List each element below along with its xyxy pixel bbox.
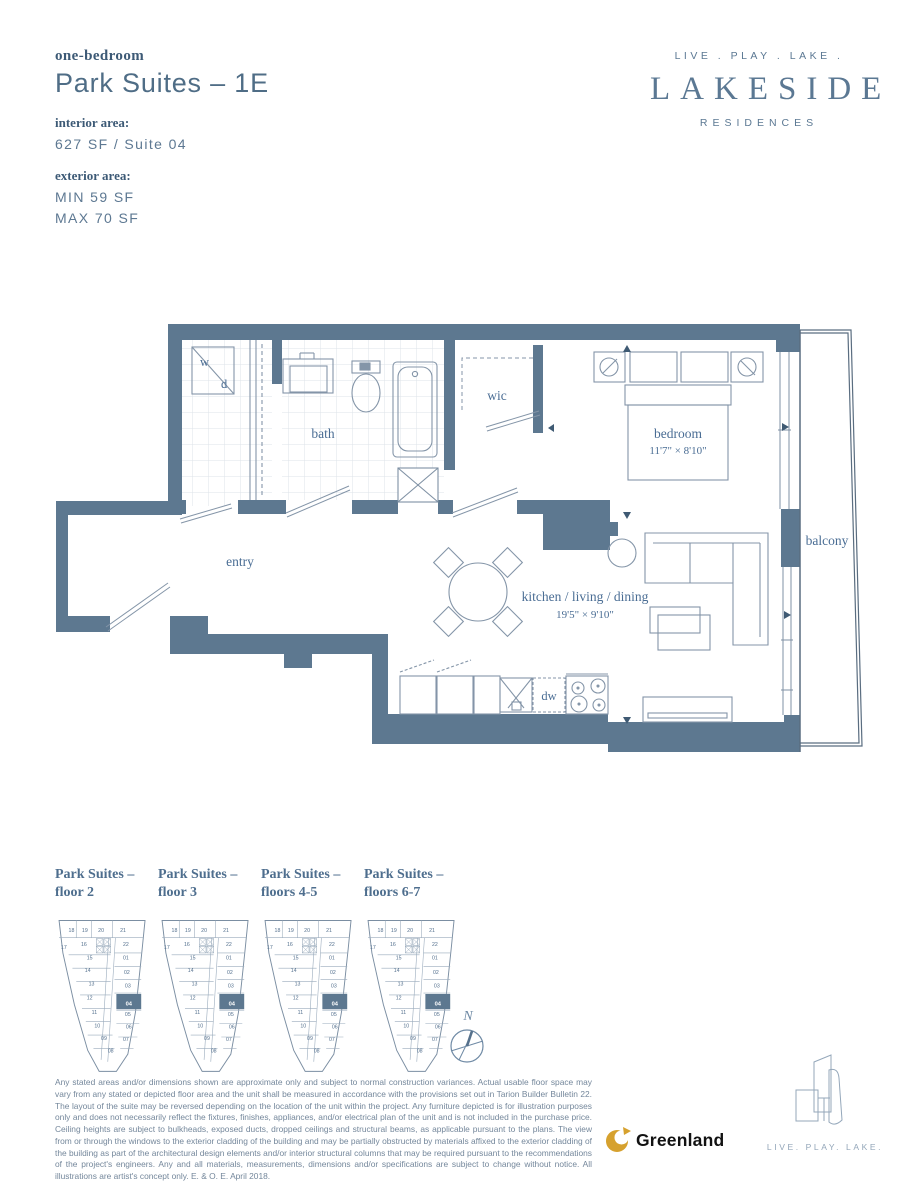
keyplan-unit-number: 06: [126, 1024, 132, 1030]
developer-name: Greenland: [636, 1130, 724, 1151]
keyplan-unit-number: 09: [204, 1036, 210, 1042]
keyplan-unit-number: 16: [287, 942, 293, 948]
keyplan-map: 1819202117162215011402130312041105100609…: [261, 909, 350, 1084]
keyplan-unit-number: 17: [267, 945, 273, 951]
keyplan-drawing: 1819202117162215011402130312041105100609…: [158, 909, 254, 1079]
bedroom-furniture: [594, 352, 763, 480]
keyplan-unit-number: 10: [94, 1023, 100, 1029]
keyplan-unit-number: 20: [201, 928, 207, 934]
keyplan-unit-number: 08: [211, 1048, 217, 1054]
exterior-area-max: MAX 70 SF: [55, 210, 269, 226]
keyplan-map: 1819202117162215011402130312041105100609…: [55, 909, 144, 1084]
wic-label: wic: [487, 388, 507, 403]
keyplan-unit-number: 17: [164, 945, 170, 951]
keyplan-floor-3: Park Suites –floor 3 1819202117162215011…: [158, 866, 247, 1084]
header: one-bedroom Park Suites – 1E interior ar…: [55, 48, 269, 226]
keyplan-unit-number: 20: [407, 928, 413, 934]
dryer-label: d: [221, 377, 228, 391]
keyplan-unit-number: 22: [226, 942, 232, 948]
keyplan-unit-number: 15: [190, 956, 196, 962]
keyplan-unit-number: 10: [403, 1023, 409, 1029]
keyplan-label: Park Suites –: [158, 867, 237, 882]
keyplan-unit-number: 13: [398, 981, 404, 987]
greenland-icon: [605, 1126, 631, 1154]
keyplan-unit-number: 19: [391, 928, 397, 934]
keyplan-unit-number: 05: [228, 1012, 234, 1018]
page-title: Park Suites – 1E: [55, 68, 269, 99]
bedroom-label: bedroom: [654, 426, 702, 441]
main-room-dims: 19'5" × 9'10": [556, 609, 614, 621]
keyplan-unit-number: 16: [81, 942, 87, 948]
keyplan-label: Park Suites –: [261, 867, 340, 882]
keyplan-unit-number: 19: [185, 928, 191, 934]
keyplan-unit-number: 02: [227, 970, 233, 976]
dishwasher-label: dw: [541, 689, 556, 703]
keyplan-unit-number: 18: [275, 928, 281, 934]
keyplan-unit-number: 03: [434, 983, 440, 989]
keyplan-unit-number: 16: [184, 942, 190, 948]
entry-label: entry: [226, 554, 254, 569]
keyplan-unit-number: 08: [108, 1048, 114, 1054]
linen-closet: [398, 468, 438, 502]
keyplan-unit-number: 10: [197, 1023, 203, 1029]
building-sketch-icon: [786, 1048, 858, 1136]
keyplan-unit-number: 20: [304, 928, 310, 934]
developer-logo: Greenland: [605, 1126, 724, 1154]
keyplan-unit-number: 03: [125, 983, 131, 989]
keyplan-unit-number: 17: [370, 945, 376, 951]
floorplan-drawing: w d bath wic: [0, 300, 918, 780]
keyplan-unit-number: 09: [307, 1036, 313, 1042]
keyplan-unit-number: 12: [293, 996, 299, 1002]
keyplan-floors-4-5: Park Suites –floors 4-5 1819202117162215…: [261, 866, 350, 1084]
keyplan-unit-number: 09: [410, 1036, 416, 1042]
keyplan-unit-number: 18: [69, 928, 75, 934]
keyplan-unit-number: 14: [85, 968, 91, 974]
footer-tagline: LIVE. PLAY. LAKE.: [762, 1142, 888, 1152]
keyplans-row: Park Suites –floor 2 1819202117162215011…: [55, 866, 453, 1084]
keyplan-unit-number: 21: [326, 928, 332, 934]
brand-subname: RESIDENCES: [640, 117, 878, 129]
keyplan-unit-number: 02: [330, 970, 336, 976]
keyplan-unit-number: 22: [329, 942, 335, 948]
interior-area-label: interior area:: [55, 115, 269, 131]
keyplan-unit-number: 14: [291, 968, 297, 974]
keyplan-unit-number: 01: [432, 956, 438, 962]
keyplan-unit-number: 21: [120, 928, 126, 934]
keyplan-label: Park Suites –: [55, 867, 134, 882]
keyplan-drawing: 1819202117162215011402130312041105100609…: [261, 909, 357, 1079]
brand-logo: LIVE . PLAY . LAKE . LAKESIDE RESIDENCES: [640, 50, 878, 129]
keyplan-unit-number: 19: [82, 928, 88, 934]
keyplan-unit-number: 13: [89, 981, 95, 987]
keyplan-unit-number: 22: [123, 942, 129, 948]
unit-type: one-bedroom: [55, 48, 269, 65]
keyplan-unit-number: 02: [124, 970, 130, 976]
kitchen-fixtures: [400, 660, 608, 714]
keyplan-unit-number: 06: [332, 1024, 338, 1030]
keyplan-unit-number: 07: [329, 1037, 335, 1043]
keyplan-unit-number: 14: [394, 968, 400, 974]
keyplan-unit-number: 04: [332, 1001, 339, 1007]
keyplan-unit-number: 05: [331, 1012, 337, 1018]
keyplan-unit-number: 11: [195, 1010, 201, 1016]
main-room-label: kitchen / living / dining: [522, 589, 649, 604]
keyplan-unit-number: 07: [123, 1037, 129, 1043]
keyplan-unit-number: 19: [288, 928, 294, 934]
keyplan-unit-number: 03: [228, 983, 234, 989]
keyplan-unit-number: 08: [314, 1048, 320, 1054]
keyplan-unit-number: 18: [378, 928, 384, 934]
compass-north-label: N: [462, 1009, 473, 1024]
keyplan-unit-number: 07: [226, 1037, 232, 1043]
keyplan-unit-number: 01: [123, 956, 129, 962]
keyplan-unit-number: 01: [329, 956, 335, 962]
keyplan-unit-number: 15: [396, 956, 402, 962]
keyplan-unit-number: 13: [295, 981, 301, 987]
keyplan-floor-2: Park Suites –floor 2 1819202117162215011…: [55, 866, 144, 1084]
keyplan-label: Park Suites –: [364, 867, 443, 882]
keyplan-unit-number: 21: [429, 928, 435, 934]
balcony-label: balcony: [806, 533, 849, 548]
brand-tagline: LIVE . PLAY . LAKE .: [640, 50, 878, 62]
keyplan-map: 1819202117162215011402130312041105100609…: [158, 909, 247, 1084]
compass: N: [437, 1006, 499, 1072]
disclaimer-text: Any stated areas and/or dimensions shown…: [55, 1077, 592, 1183]
dining-set: [434, 548, 523, 637]
keyplan-unit-number: 02: [433, 970, 439, 976]
keyplan-unit-number: 09: [101, 1036, 107, 1042]
laundry-floor: [182, 340, 272, 506]
keyplan-unit-number: 08: [417, 1048, 423, 1054]
keyplan-unit-number: 21: [223, 928, 229, 934]
floorplan-page: one-bedroom Park Suites – 1E interior ar…: [0, 0, 918, 1188]
exterior-area-label: exterior area:: [55, 168, 269, 184]
keyplan-drawing: 1819202117162215011402130312041105100609…: [55, 909, 151, 1079]
keyplan-unit-number: 12: [190, 996, 196, 1002]
keyplan-unit-number: 15: [293, 956, 299, 962]
keyplan-unit-number: 17: [61, 945, 67, 951]
keyplan-unit-number: 06: [229, 1024, 235, 1030]
keyplan-unit-number: 03: [331, 983, 337, 989]
living-furniture: [608, 533, 768, 722]
bedroom-dims: 11'7" × 8'10": [649, 445, 706, 457]
keyplan-unit-number: 22: [432, 942, 438, 948]
keyplan-unit-number: 20: [98, 928, 104, 934]
keyplan-unit-number: 16: [390, 942, 396, 948]
exterior-area-min: MIN 59 SF: [55, 189, 269, 205]
keyplan-unit-number: 04: [229, 1001, 236, 1007]
washer-label: w: [200, 355, 209, 369]
bath-label: bath: [311, 426, 334, 441]
keyplan-unit-number: 14: [188, 968, 194, 974]
keyplan-unit-number: 12: [396, 996, 402, 1002]
keyplan-unit-number: 05: [125, 1012, 131, 1018]
keyplan-unit-number: 12: [87, 996, 93, 1002]
wic-shelving: [462, 358, 533, 412]
keyplan-unit-number: 15: [87, 956, 93, 962]
keyplan-unit-number: 18: [172, 928, 178, 934]
keyplan-unit-number: 11: [298, 1010, 304, 1016]
keyplan-unit-number: 11: [92, 1010, 98, 1016]
keyplan-unit-number: 01: [226, 956, 232, 962]
keyplan-unit-number: 11: [401, 1010, 407, 1016]
keyplan-unit-number: 10: [300, 1023, 306, 1029]
keyplan-unit-number: 13: [192, 981, 198, 987]
brand-name: LAKESIDE: [650, 71, 878, 108]
keyplan-unit-number: 04: [126, 1001, 133, 1007]
interior-area-value: 627 SF / Suite 04: [55, 136, 269, 152]
